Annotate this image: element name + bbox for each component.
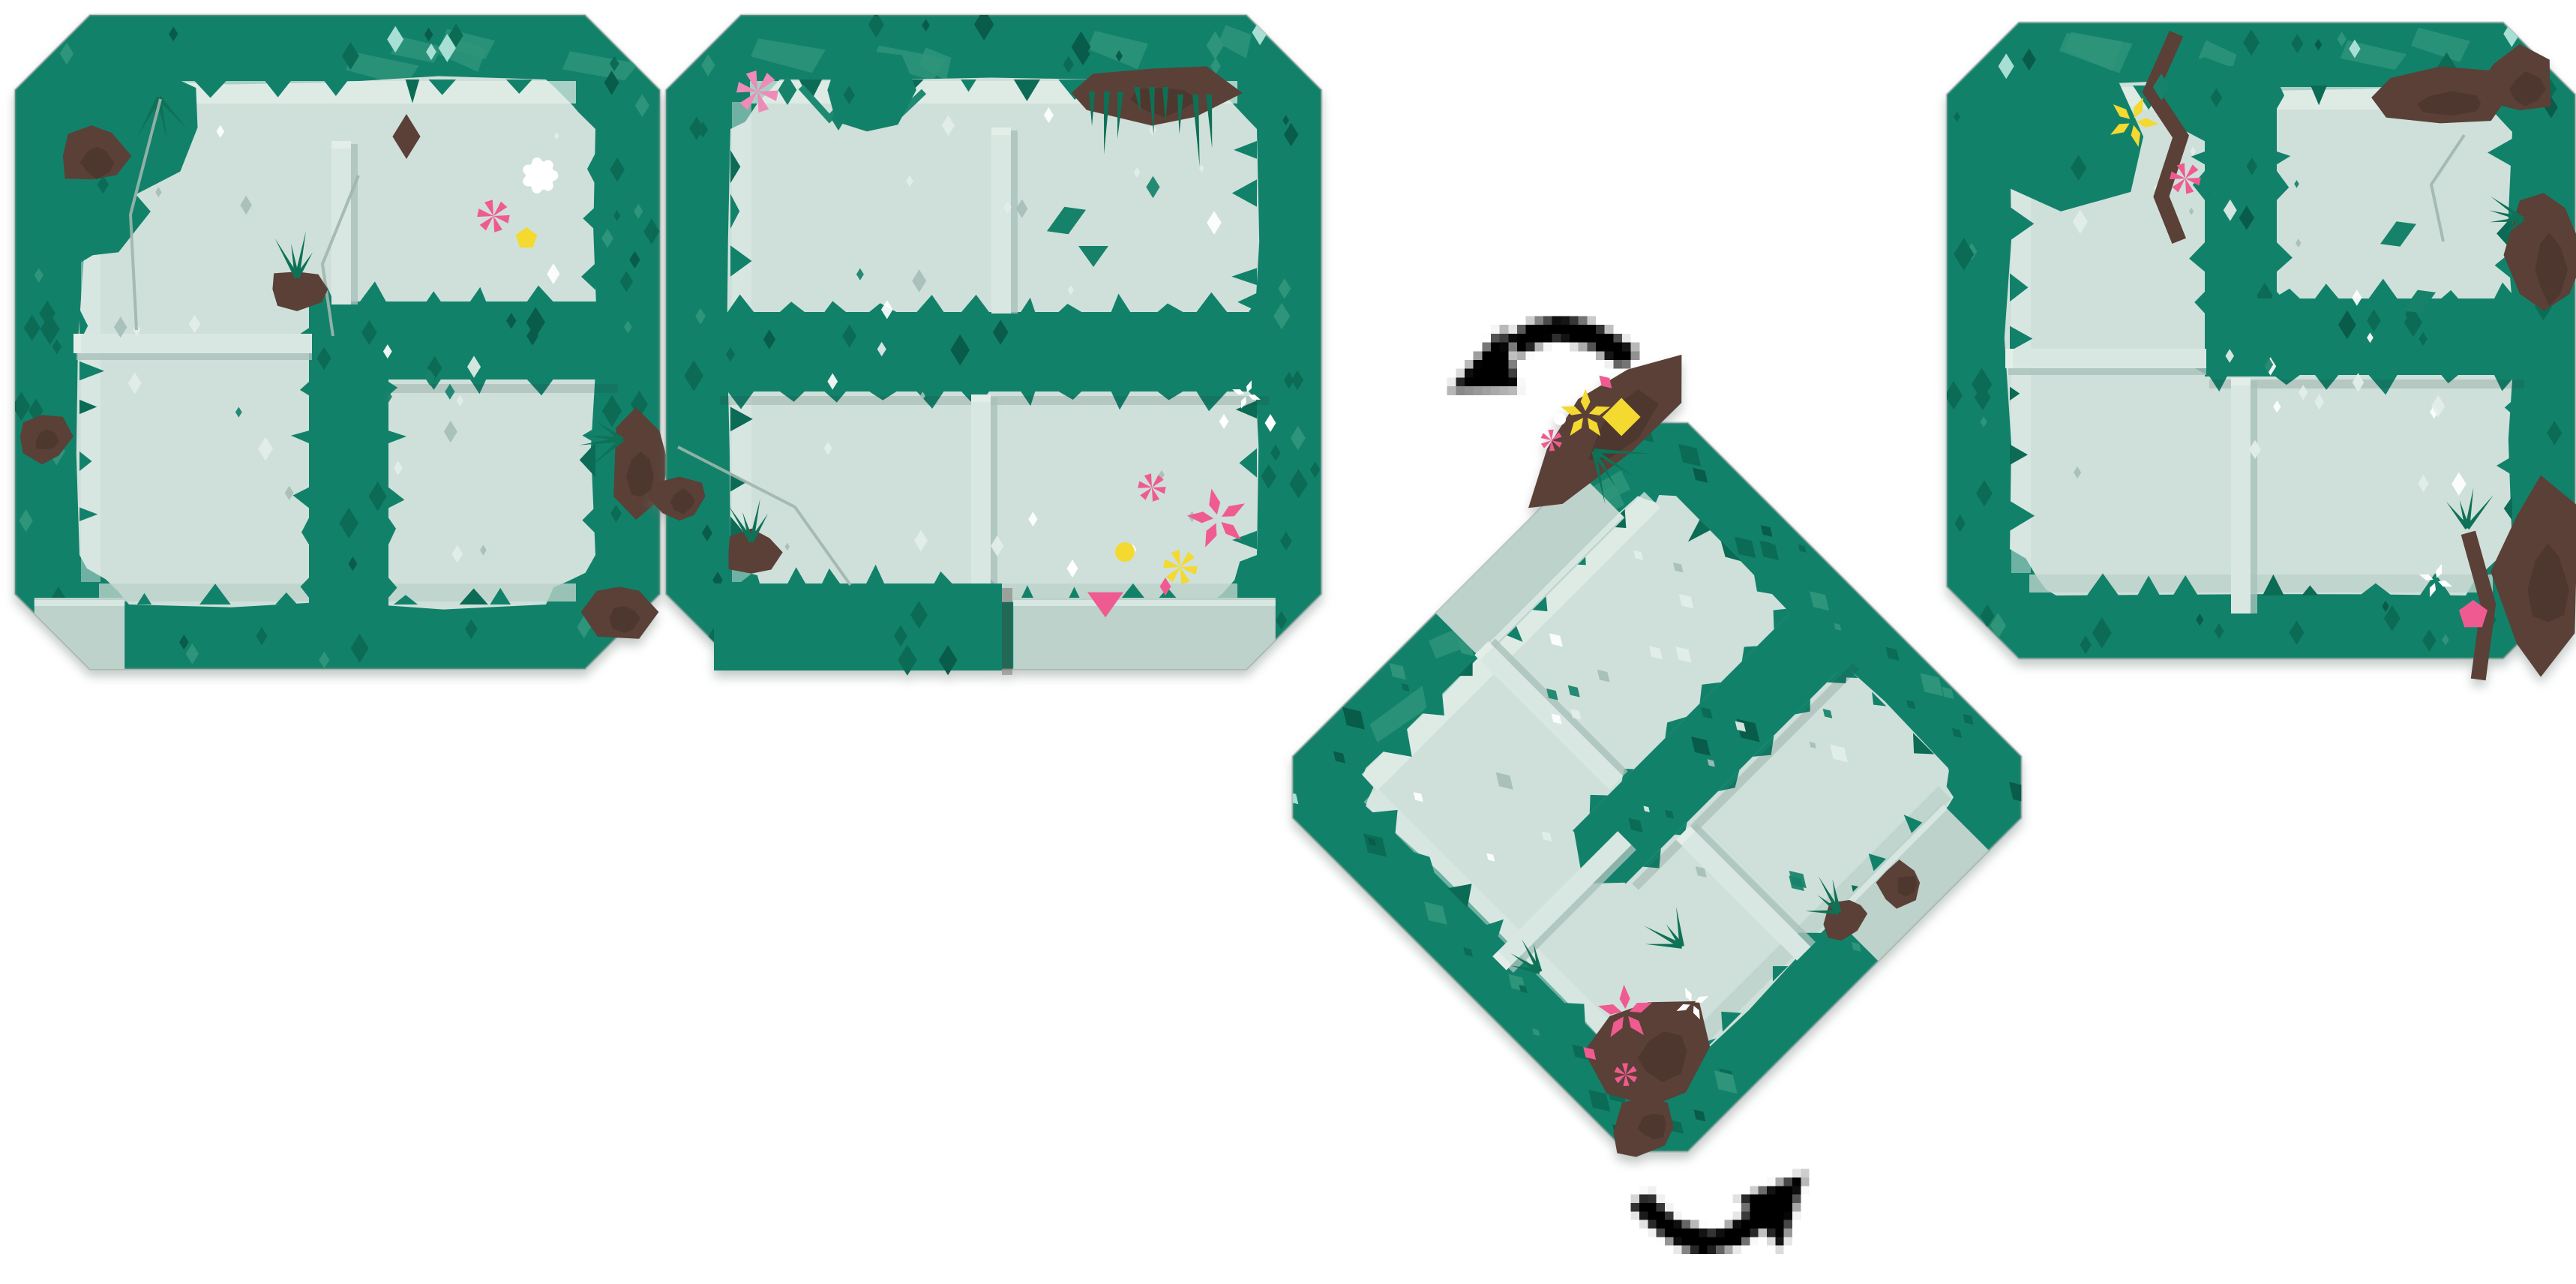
- rotate-ccw-arrow-top[interactable]: [1438, 298, 1648, 421]
- puzzle-board: [0, 0, 2576, 1284]
- puzzle-tile-middle[interactable]: [666, 15, 1321, 669]
- stone-seam: [2231, 378, 2257, 613]
- rotate-ccw-arrow-bottom[interactable]: [1614, 1152, 1818, 1279]
- stone-seam: [2005, 349, 2206, 375]
- stone-seam: [991, 127, 1018, 313]
- stone-seam: [73, 334, 312, 360]
- speck-icon: [1115, 542, 1135, 562]
- worn-edge: [1013, 598, 1276, 670]
- puzzle-tile-left[interactable]: [15, 15, 660, 669]
- puzzle-tile-rotating[interactable]: [1378, 508, 1936, 1066]
- puzzle-tile-right[interactable]: [1947, 22, 2575, 658]
- stone-seam: [971, 394, 997, 583]
- stone-seam: [331, 141, 358, 304]
